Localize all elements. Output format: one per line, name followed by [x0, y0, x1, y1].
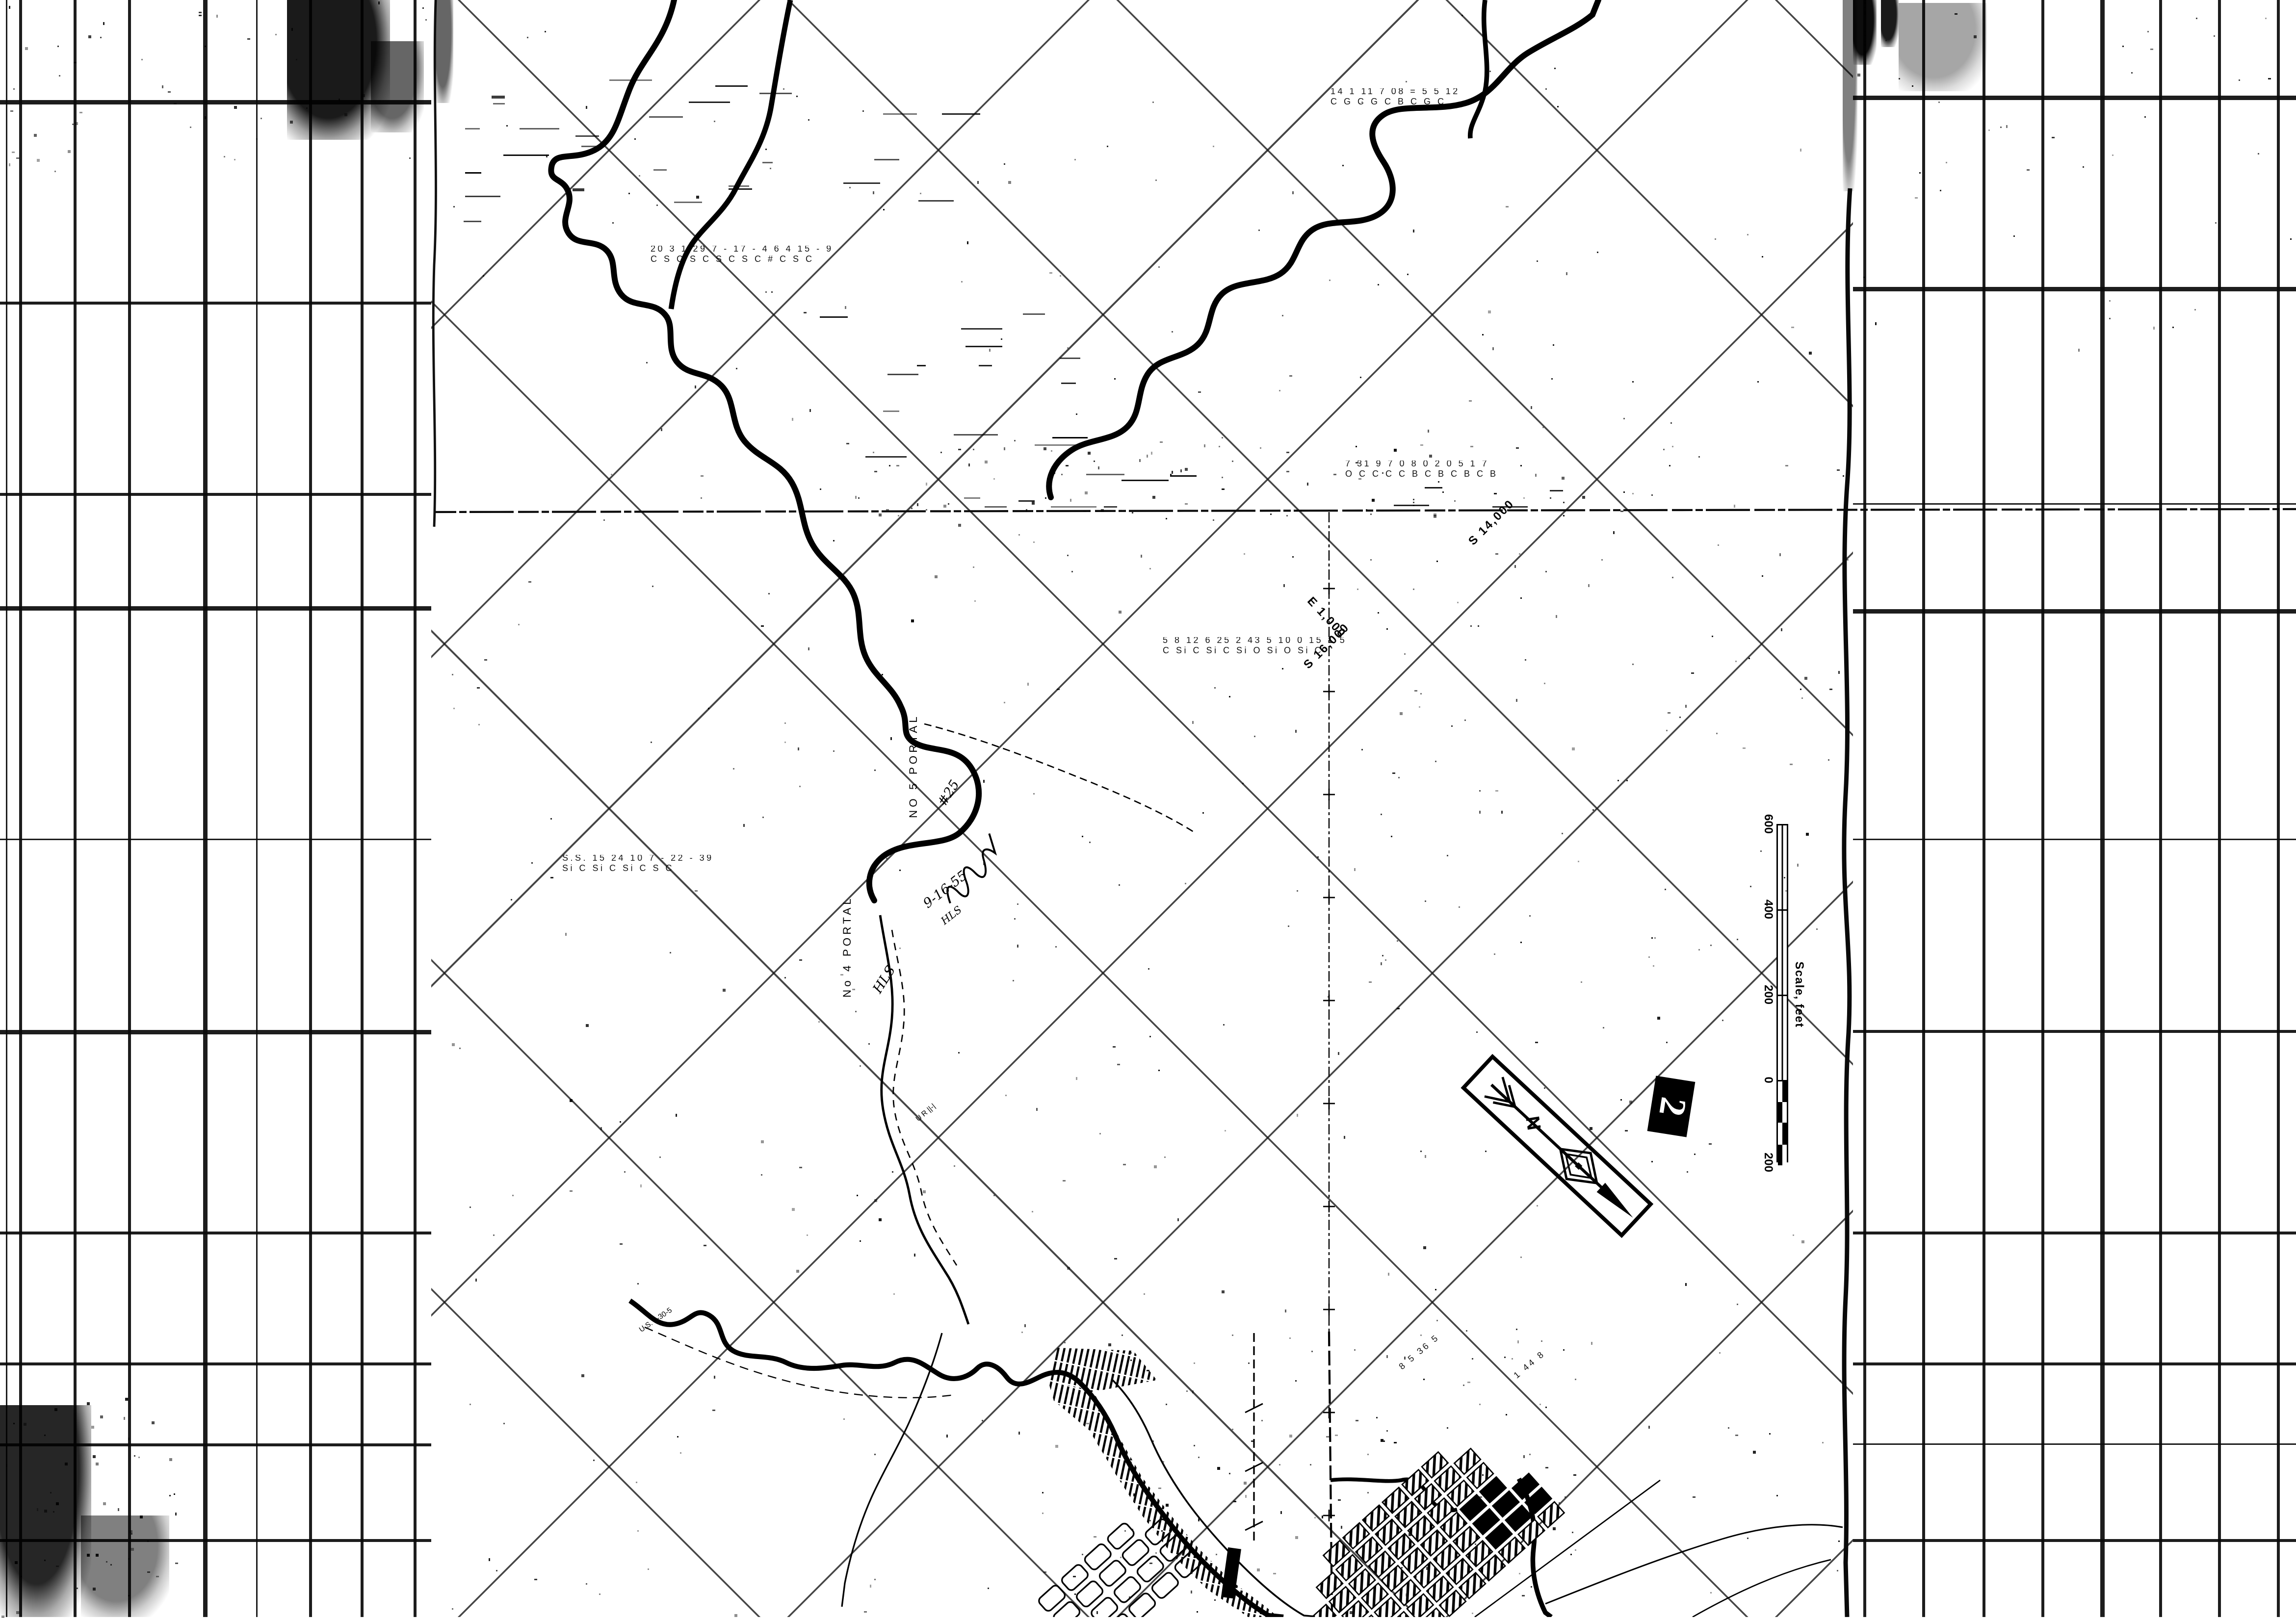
- noise-dot: [25, 48, 27, 50]
- noise-dot: [925, 483, 928, 486]
- noise-dot: [1624, 417, 1625, 419]
- noise-dot: [74, 61, 77, 64]
- noise-streak: [1492, 507, 1527, 509]
- noise-dot: [1685, 705, 1687, 707]
- noise-dot: [840, 974, 843, 976]
- noise-dot: [1149, 1036, 1151, 1038]
- noise-dot: [1109, 1343, 1111, 1346]
- town-block-outline: [1052, 1600, 1081, 1617]
- noise-dot: [1003, 702, 1006, 704]
- noise-dot: [1118, 1063, 1120, 1065]
- noise-dot: [1033, 541, 1035, 543]
- noise-dot: [1066, 465, 1068, 467]
- noise-dot: [2196, 17, 2198, 19]
- noise-dot: [1271, 513, 1272, 514]
- noise-dot: [1050, 1372, 1052, 1374]
- noise-dot: [1523, 1456, 1526, 1458]
- noise-dot: [1155, 179, 1157, 181]
- noise-dot: [1478, 625, 1480, 627]
- noise-dot: [637, 1283, 639, 1285]
- noise-dot: [57, 45, 59, 47]
- noise-dot: [1596, 251, 1599, 254]
- noise-dot: [1355, 446, 1357, 448]
- noise-dot: [1162, 1461, 1164, 1463]
- noise-dot: [792, 1208, 794, 1210]
- noise-dot: [1225, 1130, 1226, 1132]
- noise-dot: [1125, 1530, 1127, 1532]
- noise-dot: [765, 291, 767, 293]
- noise-dot: [1394, 1442, 1396, 1444]
- sheet-right-edge: [1844, 188, 1850, 1617]
- noise-dot: [893, 1293, 894, 1295]
- noise-dot: [410, 157, 411, 159]
- noise-dot: [1158, 267, 1160, 269]
- noise-dot: [1800, 149, 1801, 151]
- noise-dot: [1259, 447, 1261, 449]
- noise-dot: [1712, 636, 1714, 638]
- noise-dot: [809, 648, 810, 650]
- noise-dot: [2109, 317, 2111, 319]
- noise-dot: [862, 110, 865, 112]
- noise-dot: [1283, 585, 1285, 587]
- noise-dot: [1630, 1101, 1632, 1104]
- noise-streak: [874, 158, 899, 160]
- noise-dot: [1670, 422, 1672, 424]
- noise-dot: [869, 1585, 871, 1587]
- noise-dot: [103, 1502, 106, 1505]
- noise-dot: [854, 988, 856, 990]
- noise-dot: [2000, 127, 2003, 129]
- noise-dot: [1837, 469, 1839, 471]
- noise-dot: [485, 659, 487, 661]
- noise-dot: [2027, 169, 2029, 171]
- noise-dot: [1315, 1517, 1316, 1519]
- noise-dot: [1945, 162, 1947, 164]
- noise-streak: [1122, 480, 1169, 482]
- noise-dot: [1516, 447, 1518, 449]
- noise-dot: [1399, 776, 1400, 778]
- noise-dot: [1003, 163, 1005, 165]
- noise-dot: [1284, 1310, 1287, 1312]
- river-upper-east-stub: [1470, 0, 1487, 138]
- noise-dot: [859, 497, 861, 499]
- noise-dot: [912, 620, 914, 622]
- noise-streak: [978, 365, 992, 367]
- scale-bar-rule: [1776, 824, 1788, 1162]
- noise-dot: [1800, 689, 1801, 691]
- creek-dashed-parallel: [924, 724, 1195, 833]
- scale-bar-checker-cell: [1778, 1081, 1782, 1103]
- noise-dot: [570, 1190, 572, 1192]
- noise-dot: [1471, 626, 1472, 627]
- noise-dot: [1131, 1529, 1133, 1531]
- noise-dot: [425, 19, 427, 21]
- noise-dot: [1120, 1556, 1122, 1558]
- boring-log-label: S.S. 15 24 10 7 - 22 - 39Si C Si C Si C …: [562, 855, 714, 875]
- noise-dot: [1463, 1384, 1465, 1386]
- noise-dot: [1549, 498, 1551, 500]
- noise-dot: [1232, 1429, 1234, 1431]
- noise-dot: [784, 977, 785, 978]
- scale-bar-checker-cell: [1783, 1103, 1787, 1124]
- noise-dot: [1152, 1440, 1154, 1442]
- noise-dot: [2082, 166, 2084, 168]
- noise-dot: [1166, 1404, 1168, 1406]
- noise-dot: [1435, 761, 1436, 763]
- noise-dot: [1822, 1442, 1823, 1444]
- noise-dot: [852, 988, 854, 990]
- noise-dot: [1153, 101, 1155, 103]
- noise-dot: [1114, 379, 1115, 380]
- noise-dot: [1229, 695, 1231, 697]
- noise-dot: [897, 465, 899, 467]
- noise-dot: [1626, 779, 1628, 781]
- noise-dot: [1717, 544, 1719, 545]
- noise-dot: [1621, 511, 1623, 513]
- noise-dot: [1068, 1267, 1070, 1269]
- noise-dot: [1648, 956, 1650, 958]
- scale-bar-tick-label: 200: [1762, 1153, 1775, 1172]
- noise-dot: [1479, 790, 1481, 792]
- noise-dot: [1198, 1519, 1200, 1521]
- noise-dot: [1420, 1150, 1422, 1152]
- noise-dot: [1457, 602, 1459, 603]
- noise-dot: [1651, 938, 1653, 940]
- noise-dot: [1710, 1592, 1712, 1593]
- noise-dot: [1382, 472, 1383, 474]
- noise-dot: [974, 600, 976, 602]
- noise-dot: [493, 1234, 495, 1235]
- noise-dot: [784, 722, 786, 724]
- scan-smudge: [436, 0, 453, 103]
- noise-streak: [689, 101, 731, 103]
- noise-dot: [1454, 500, 1456, 501]
- noise-streak: [1018, 501, 1035, 503]
- noise-dot: [1588, 584, 1591, 587]
- noise-dot: [176, 1562, 178, 1564]
- noise-dot: [123, 1417, 126, 1420]
- noise-dot: [1415, 690, 1417, 692]
- noise-dot: [799, 786, 801, 788]
- noise-dot: [1658, 1017, 1660, 1019]
- noise-dot: [610, 473, 612, 475]
- noise-streak: [1035, 444, 1078, 446]
- noise-dot: [1458, 906, 1460, 908]
- noise-dot: [1274, 1573, 1276, 1575]
- scale-bar-segment: [1778, 996, 1787, 1081]
- noise-dot: [1530, 915, 1531, 916]
- noise-dot: [1570, 1554, 1571, 1556]
- noise-dot: [849, 187, 850, 188]
- noise-dot: [1737, 1303, 1738, 1305]
- noise-dot: [1602, 559, 1603, 560]
- noise-dot: [1496, 791, 1498, 793]
- noise-dot: [1394, 449, 1397, 452]
- noise-dot: [881, 674, 883, 675]
- noise-dot: [820, 488, 822, 490]
- noise-dot: [1483, 1475, 1485, 1477]
- noise-dot: [477, 687, 479, 689]
- noise-dot: [1000, 338, 1002, 339]
- noise-dot: [919, 193, 921, 195]
- noise-dot: [1147, 1498, 1149, 1500]
- noise-dot: [1171, 471, 1174, 474]
- noise-dot: [1425, 1155, 1427, 1157]
- noise-dot: [1021, 1331, 1023, 1334]
- noise-dot: [489, 1559, 491, 1561]
- noise-dot: [1436, 561, 1437, 562]
- noise-dot: [1797, 864, 1799, 866]
- noise-dot: [1514, 565, 1516, 567]
- noise-dot: [874, 1579, 876, 1581]
- noise-dot: [1748, 658, 1749, 660]
- noise-dot: [169, 1459, 172, 1461]
- noise-dot: [1288, 926, 1289, 927]
- noise-dot: [1536, 1042, 1538, 1044]
- noise-dot: [762, 817, 764, 819]
- noise-dot: [1687, 1171, 1688, 1172]
- noise-dot: [1087, 1422, 1089, 1425]
- noise-dot: [1757, 381, 1759, 383]
- noise-dot: [1412, 230, 1415, 232]
- town-blocks-hatched: [1284, 1416, 1564, 1617]
- noise-dot: [599, 1593, 600, 1595]
- noise-dot: [1423, 1247, 1426, 1249]
- noise-dot: [1623, 491, 1625, 493]
- noise-dot: [1743, 747, 1745, 749]
- noise-dot: [1737, 938, 1739, 940]
- noise-dot: [1403, 1578, 1405, 1580]
- noise-dot: [1555, 616, 1557, 617]
- noise-dot: [9, 164, 11, 166]
- noise-dot: [1418, 1596, 1420, 1598]
- noise-dot: [1430, 455, 1432, 457]
- noise-dot: [101, 1415, 103, 1417]
- noise-dot: [1009, 181, 1011, 184]
- noise-dot: [768, 593, 769, 595]
- noise-dot: [1419, 706, 1420, 707]
- noise-dot: [1202, 812, 1204, 814]
- scan-smudge: [1881, 0, 1899, 47]
- noise-dot: [1185, 503, 1187, 505]
- noise-dot: [1005, 1094, 1007, 1096]
- noise-dot: [761, 1175, 762, 1176]
- noise-dot: [875, 770, 877, 772]
- noise-dot: [659, 1156, 661, 1158]
- noise-streak: [888, 373, 919, 375]
- noise-dot: [1221, 476, 1224, 479]
- noise-dot: [1150, 1562, 1152, 1564]
- noise-dot: [1750, 886, 1752, 887]
- noise-dot: [1161, 1530, 1163, 1532]
- noise-dot: [900, 870, 901, 872]
- noise-dot: [1376, 1417, 1377, 1418]
- noise-streak: [1023, 313, 1046, 315]
- noise-dot: [1096, 1612, 1098, 1614]
- noise-streak: [520, 128, 559, 130]
- noise-dot: [2109, 300, 2111, 302]
- noise-dot: [807, 1234, 808, 1235]
- noise-dot: [275, 34, 277, 35]
- scale-bar-tick-label: 400: [1762, 899, 1775, 919]
- noise-streak: [504, 154, 550, 156]
- noise-dot: [701, 475, 703, 477]
- noise-dot: [1518, 553, 1520, 554]
- noise-dot: [1465, 1330, 1467, 1332]
- noise-dot: [1581, 981, 1583, 983]
- noise-dot: [58, 75, 60, 77]
- noise-dot: [470, 1404, 471, 1405]
- noise-dot: [93, 1456, 96, 1459]
- noise-dot: [570, 1099, 573, 1102]
- noise-dot: [1044, 447, 1046, 450]
- noise-streak: [883, 113, 917, 115]
- scale-bar-tick-label: 600: [1762, 814, 1775, 834]
- noise-dot: [1493, 1568, 1495, 1569]
- noise-dot: [1281, 668, 1283, 669]
- noise-dot: [1536, 474, 1538, 476]
- noise-dot: [68, 151, 70, 153]
- noise-dot: [545, 31, 546, 32]
- map-linework: [0, 0, 2296, 1617]
- noise-dot: [1359, 478, 1361, 480]
- bay-west-bank: [842, 1333, 942, 1607]
- noise-dot: [1434, 515, 1436, 517]
- noise-dot: [224, 155, 226, 157]
- noise-dot: [1042, 1513, 1043, 1515]
- noise-dot: [1809, 352, 1811, 354]
- noise-dot: [1387, 1273, 1390, 1275]
- noise-dot: [582, 1374, 584, 1377]
- noise-dot: [1714, 239, 1716, 240]
- noise-dot: [1192, 1390, 1194, 1393]
- noise-dot: [1366, 509, 1367, 510]
- noise-dot: [1529, 1454, 1531, 1456]
- noise-dot: [1278, 389, 1280, 391]
- noise-dot: [1386, 1355, 1388, 1358]
- noise-dot: [1479, 1403, 1481, 1406]
- noise-dot: [864, 1611, 866, 1613]
- noise-dot: [1045, 497, 1046, 498]
- noise-streak: [653, 170, 667, 172]
- north-letter: N: [1521, 1115, 1544, 1132]
- noise-dot: [1356, 462, 1358, 464]
- noise-dot: [1161, 1539, 1163, 1541]
- town-block-outline: [1090, 1596, 1119, 1617]
- noise-dot: [1565, 273, 1568, 275]
- noise-dot: [628, 192, 630, 194]
- noise-dot: [1562, 477, 1565, 479]
- noise-dot: [887, 509, 888, 511]
- noise-dot: [1401, 1567, 1403, 1569]
- noise-dot: [1122, 1335, 1123, 1336]
- road-southeast-3: [1693, 1560, 1831, 1617]
- noise-dot: [1698, 456, 1700, 458]
- noise-dot: [1199, 391, 1201, 393]
- noise-dot: [1119, 884, 1121, 886]
- noise-dot: [151, 1421, 154, 1424]
- noise-dot: [1306, 483, 1309, 485]
- noise-dot: [1838, 1541, 1839, 1542]
- noise-dot: [1592, 810, 1593, 811]
- noise-dot: [1258, 229, 1260, 231]
- noise-dot: [1424, 900, 1426, 902]
- noise-dot: [1563, 501, 1564, 503]
- noise-dot: [1519, 1572, 1521, 1574]
- noise-dot: [1613, 531, 1615, 534]
- noise-dot: [1784, 876, 1786, 878]
- noise-dot: [1649, 1426, 1651, 1428]
- noise-dot: [1578, 861, 1580, 863]
- noise-dot: [1988, 129, 1990, 132]
- noise-dot: [1735, 661, 1736, 662]
- noise-dot: [1521, 1256, 1522, 1258]
- noise-dot: [1019, 534, 1020, 535]
- noise-dot: [1243, 553, 1245, 555]
- noise-dot: [1381, 1439, 1383, 1442]
- noise-dot: [1057, 688, 1059, 690]
- noise-dot: [1553, 344, 1555, 346]
- noise-dot: [639, 175, 641, 176]
- noise-dot: [1192, 721, 1194, 723]
- noise-dot: [2216, 223, 2217, 224]
- noise-dot: [72, 124, 74, 126]
- noise-dot: [1537, 260, 1538, 261]
- noise-dot: [1360, 377, 1362, 379]
- noise-dot: [1164, 1156, 1166, 1158]
- scale-bar-checker-cell: [1783, 1144, 1787, 1165]
- noise-dot: [2265, 17, 2266, 19]
- noise-dot: [1380, 813, 1382, 815]
- noise-dot: [1212, 145, 1215, 148]
- noise-dot: [1082, 835, 1084, 837]
- noise-dot: [1333, 473, 1336, 476]
- noise-dot: [2290, 238, 2292, 240]
- noise-dot: [170, 1495, 172, 1497]
- noise-dot: [603, 519, 605, 521]
- noise-dot: [1427, 1567, 1429, 1570]
- scale-bar-segment: [1778, 911, 1787, 996]
- noise-dot: [1546, 1406, 1547, 1408]
- noise-dot: [890, 738, 892, 740]
- noise-dot: [1471, 1358, 1474, 1360]
- noise-dot: [1244, 1482, 1246, 1484]
- noise-dot: [1219, 445, 1220, 447]
- noise-dot: [1517, 1341, 1519, 1343]
- noise-dot: [1504, 1356, 1506, 1358]
- noise-dot: [800, 960, 802, 962]
- noise-dot: [1150, 452, 1153, 455]
- noise-dot: [660, 429, 663, 431]
- noise-dot: [657, 204, 659, 206]
- noise-dot: [452, 1044, 454, 1046]
- noise-dot: [459, 1048, 461, 1050]
- noise-dot: [855, 496, 857, 499]
- scale-bar-checker-cell: [1778, 1123, 1782, 1144]
- noise-streak: [820, 316, 848, 318]
- noise-streak: [1170, 476, 1197, 478]
- noise-dot: [694, 385, 697, 388]
- noise-dot: [1088, 452, 1090, 454]
- portal-label: No 4 PORTAL: [842, 896, 855, 998]
- noise-dot: [174, 103, 177, 105]
- noise-dot: [844, 307, 846, 308]
- noise-dot: [1694, 1153, 1696, 1155]
- noise-dot: [1443, 1568, 1445, 1570]
- sheet-number: 2: [1649, 1094, 1693, 1119]
- noise-dot: [873, 192, 875, 194]
- noise-dot: [1591, 1342, 1593, 1344]
